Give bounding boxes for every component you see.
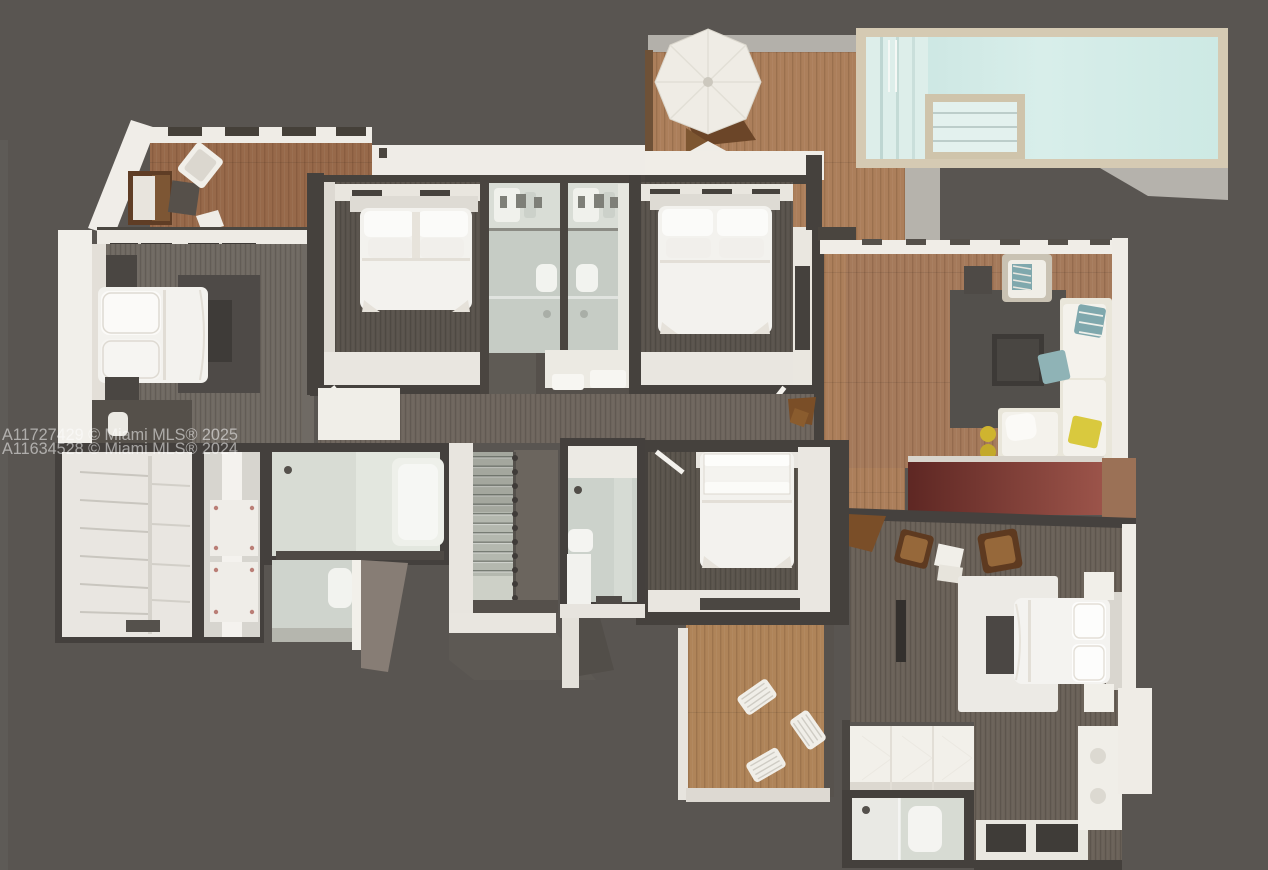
svg-text:A11634528 © Miami MLS® 2024: A11634528 © Miami MLS® 2024 <box>2 440 238 458</box>
